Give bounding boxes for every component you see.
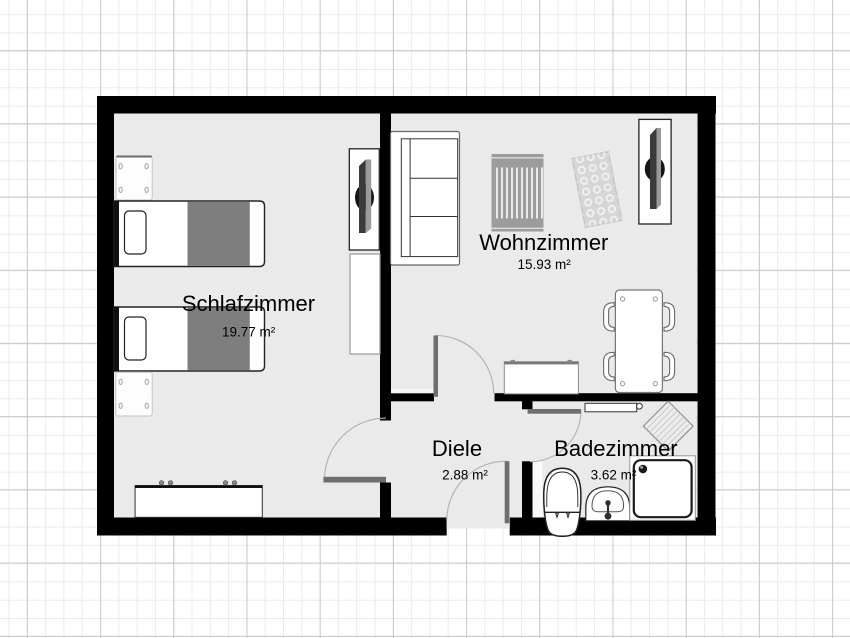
svg-text:2.88 m²: 2.88 m²: [442, 467, 488, 482]
svg-text:Wohnzimmer: Wohnzimmer: [479, 230, 608, 255]
svg-text:Schlafzimmer: Schlafzimmer: [182, 291, 315, 316]
svg-text:Badezimmer: Badezimmer: [554, 436, 677, 461]
svg-text:Diele: Diele: [432, 436, 482, 461]
svg-text:19.77 m²: 19.77 m²: [222, 325, 276, 340]
svg-text:3.62 m²: 3.62 m²: [591, 467, 637, 482]
svg-text:15.93 m²: 15.93 m²: [517, 257, 571, 272]
